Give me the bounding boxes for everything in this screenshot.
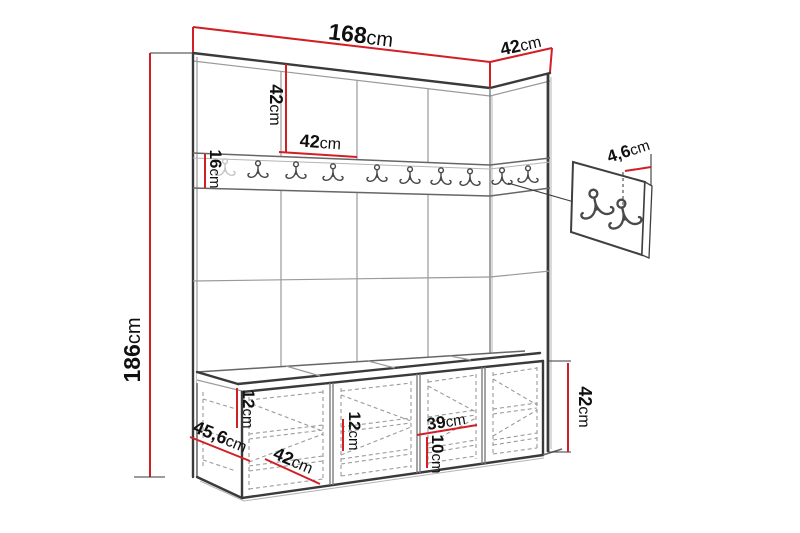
rail-top-edge-return bbox=[490, 158, 550, 165]
dimension-total-width: 168cm bbox=[193, 18, 490, 87]
coat-hook-rail bbox=[193, 153, 550, 196]
dimension-label-bench-height: 42cm bbox=[575, 386, 595, 427]
dimension-label-shelf-spacing: 12cm bbox=[345, 412, 364, 451]
dimension-side-panel-width: 42cm bbox=[490, 31, 552, 72]
dimension-label-rail-height: 16cm bbox=[206, 150, 225, 189]
panel-row-seam bbox=[193, 277, 490, 281]
dimension-bench-height: 42cm bbox=[549, 361, 595, 452]
dimension-label-total-width: 168cm bbox=[327, 18, 395, 52]
dimension-label-panel-height: 42cm bbox=[266, 84, 286, 125]
dimension-rail-height: 16cm bbox=[205, 150, 225, 189]
diagram-canvas: 168cm 42cm 186cm 42cm 42cm 16cm bbox=[0, 0, 800, 533]
dimension-label-compartment-height: 10cm bbox=[428, 435, 447, 474]
hook-icon bbox=[323, 164, 343, 180]
hook-icon bbox=[518, 166, 538, 182]
dimension-label-cushion-thickness: 12cm bbox=[239, 390, 258, 429]
hook-icon bbox=[460, 169, 480, 185]
rail-bottom-edge bbox=[193, 188, 490, 196]
return-wall-top-edge bbox=[490, 73, 550, 88]
dimension-panel-height: 42cm bbox=[266, 64, 286, 153]
dimension-label-panel-width: 42cm bbox=[299, 131, 342, 154]
hook-icon bbox=[492, 168, 512, 184]
hook-icon bbox=[431, 168, 451, 184]
hook-icon bbox=[286, 162, 306, 178]
dimension-panel-width: 42cm bbox=[279, 131, 357, 157]
return-top-inner-line bbox=[490, 81, 550, 96]
detail-panel-face bbox=[571, 162, 645, 255]
dimension-total-height: 186cm bbox=[119, 53, 192, 477]
rail-top-inner-return bbox=[490, 162, 550, 169]
dimension-compartment-height: 10cm bbox=[427, 435, 447, 474]
furniture-dimension-diagram: 168cm 42cm 186cm 42cm 42cm 16cm bbox=[0, 0, 800, 533]
dimension-label-side-panel-width: 42cm bbox=[498, 31, 543, 60]
wall-top-edge bbox=[193, 53, 490, 88]
hook-icon bbox=[248, 161, 268, 177]
wall-top-inner-line bbox=[193, 61, 490, 96]
dimension-label-hook-depth: 4,6cm bbox=[605, 135, 652, 167]
dimension-hook-depth: 4,6cm bbox=[605, 135, 652, 171]
hook-icon bbox=[367, 165, 387, 181]
panel-row-seam-return bbox=[490, 271, 550, 277]
dimension-label-total-height: 186cm bbox=[119, 317, 145, 382]
dimension-shelf-spacing: 12cm bbox=[343, 412, 364, 451]
dimension-cushion-thickness: 12cm bbox=[237, 388, 258, 428]
hook-icon bbox=[400, 167, 420, 183]
